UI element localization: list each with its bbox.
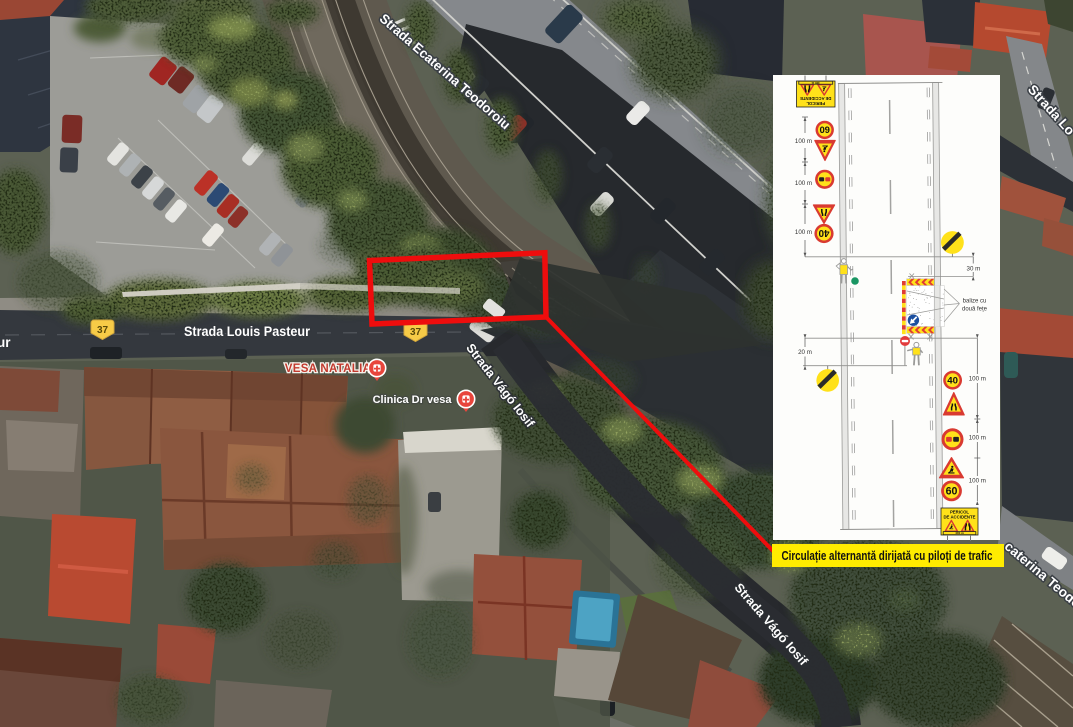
svg-text:37: 37 xyxy=(410,327,422,338)
svg-text:20 m: 20 m xyxy=(798,349,812,356)
svg-text:DE ACCIDENTE: DE ACCIDENTE xyxy=(943,514,975,519)
svg-text:Circulație alternantă dirijată: Circulație alternantă dirijată cu piloți… xyxy=(782,549,993,563)
svg-text:100 m: 100 m xyxy=(795,180,812,187)
svg-text:balize cu: balize cu xyxy=(963,299,987,305)
svg-text:100 m: 100 m xyxy=(969,435,986,442)
svg-text:30 m: 30 m xyxy=(967,265,981,272)
svg-text:100 m: 100 m xyxy=(969,478,986,485)
svg-text:400 m: 400 m xyxy=(955,531,964,535)
svg-text:60: 60 xyxy=(946,486,958,498)
svg-text:Clinica Dr vesa: Clinica Dr vesa xyxy=(373,394,453,406)
svg-text:VESA NATALIA: VESA NATALIA xyxy=(285,363,371,375)
svg-text:două fețe: două fețe xyxy=(962,306,988,312)
svg-text:40: 40 xyxy=(947,376,958,387)
svg-text:37: 37 xyxy=(97,325,109,336)
svg-text:100 m: 100 m xyxy=(795,138,812,145)
svg-text:ur: ur xyxy=(0,335,11,350)
svg-text:DE ACCIDENTE: DE ACCIDENTE xyxy=(800,96,831,101)
svg-text:100 m: 100 m xyxy=(969,376,986,383)
svg-text:Strada Louis Pasteur: Strada Louis Pasteur xyxy=(184,324,311,339)
svg-text:60: 60 xyxy=(819,124,829,135)
svg-text:400 m: 400 m xyxy=(811,81,820,85)
svg-text:40: 40 xyxy=(818,227,829,238)
svg-text:100 m: 100 m xyxy=(795,229,812,236)
